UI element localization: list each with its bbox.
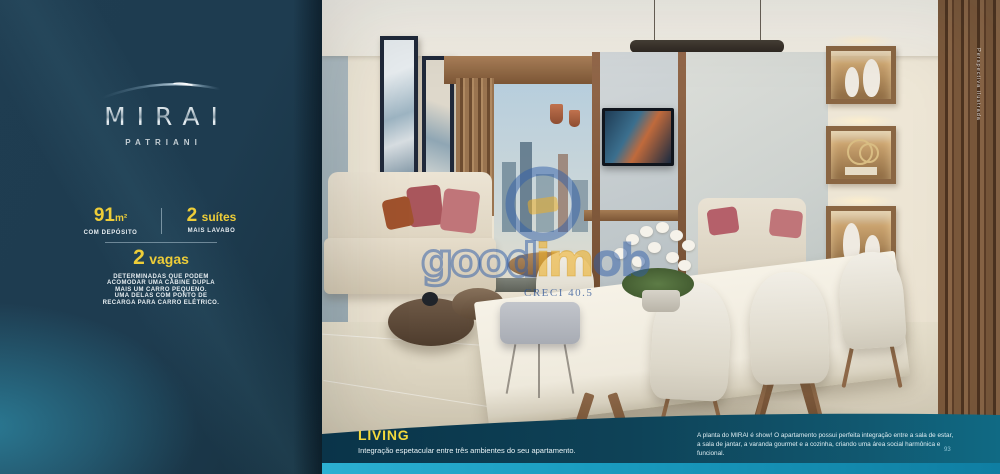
horizontal-divider xyxy=(105,242,217,243)
photo-credit: Perspectiva ilustrada xyxy=(975,48,981,121)
specs-block: 91m² COM DEPÓSITO 2 suítes MAIS LAVABO 2… xyxy=(0,206,322,306)
parking-description: DETERMINADAS QUE PODEM ACOMODAR UMA CABI… xyxy=(0,274,322,306)
parking-value: 2 xyxy=(133,246,145,269)
page-number: 93 xyxy=(944,447,951,453)
logo-name: MIRAI xyxy=(0,102,322,131)
area-unit: m² xyxy=(115,213,127,224)
brand-logo: MIRAI PATRIANI xyxy=(0,78,322,147)
spec-suites: 2 suítes MAIS LAVABO xyxy=(176,206,248,234)
spec-parking: 2 vagas xyxy=(0,247,322,271)
suites-note: MAIS LAVABO xyxy=(176,228,248,234)
apartment-description: A planta do MIRAI é show! O apartamento … xyxy=(697,431,969,458)
area-note: COM DEPÓSITO xyxy=(75,230,147,236)
brochure-page: MIRAI PATRIANI 91m² COM DEPÓSITO 2 suíte… xyxy=(0,0,1000,474)
area-value: 91 xyxy=(94,205,115,226)
section-title: LIVING xyxy=(358,427,409,443)
suites-label: suítes xyxy=(202,210,237,224)
living-room-photo xyxy=(322,0,1000,463)
specs-row: 91m² COM DEPÓSITO 2 suítes MAIS LAVABO xyxy=(0,206,322,236)
section-subtitle: Integração espetacular entre três ambien… xyxy=(358,446,576,455)
parking-label: vagas xyxy=(149,251,189,267)
logo-subname: PATRIANI xyxy=(0,138,322,147)
spec-divider xyxy=(161,208,162,234)
spec-area: 91m² COM DEPÓSITO xyxy=(75,206,147,236)
left-info-panel: MIRAI PATRIANI 91m² COM DEPÓSITO 2 suíte… xyxy=(0,0,322,474)
bottom-accent-bar xyxy=(322,463,1000,474)
suites-value: 2 xyxy=(187,205,198,226)
horizon-arc-icon xyxy=(96,78,226,100)
